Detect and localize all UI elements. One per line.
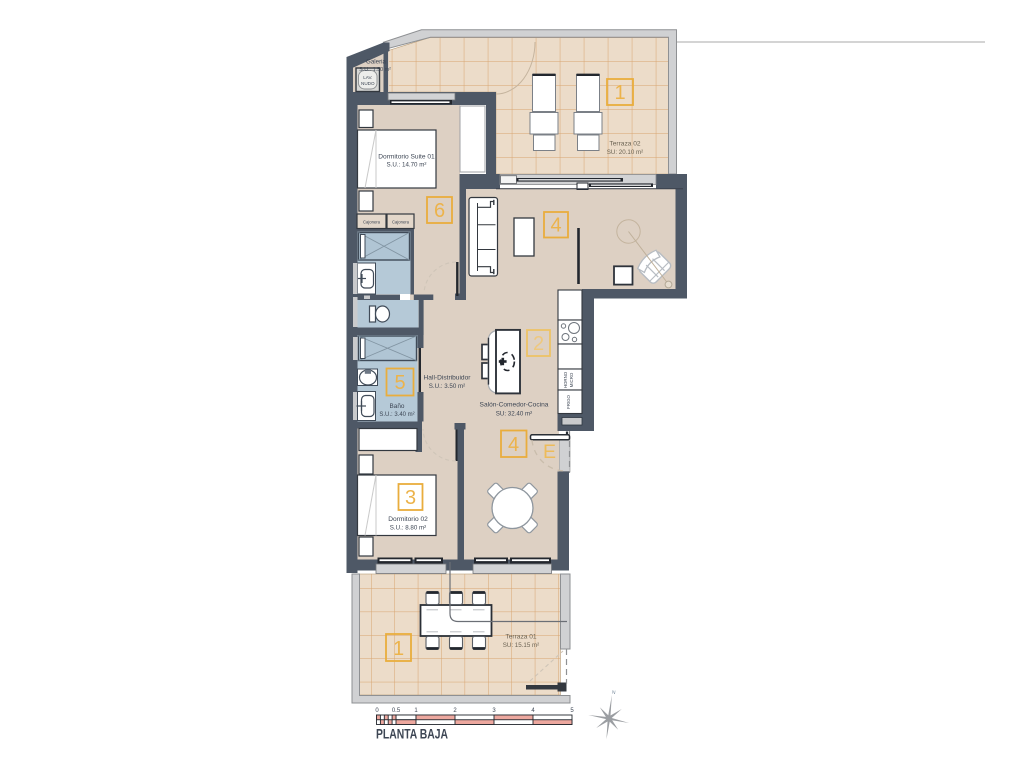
svg-text:Dormitorio 02: Dormitorio 02 (388, 516, 428, 523)
svg-text:S.U.: 3.50 m²: S.U.: 3.50 m² (429, 383, 465, 390)
svg-text:Cajonera: Cajonera (392, 220, 410, 225)
svg-text:E: E (543, 441, 556, 463)
svg-text:Terraza 01: Terraza 01 (505, 634, 536, 641)
svg-text:Hall-Distribuidor: Hall-Distribuidor (424, 375, 472, 382)
svg-text:Dormitorio Suite 01: Dormitorio Suite 01 (378, 154, 435, 161)
svg-text:S.U.: 14.70 m²: S.U.: 14.70 m² (387, 162, 427, 169)
svg-text:N: N (611, 690, 616, 696)
svg-text:SU: 32.40 m²: SU: 32.40 m² (496, 411, 532, 418)
svg-text:S.U.: 8.80 m²: S.U.: 8.80 m² (390, 525, 426, 532)
svg-text:NUDO: NUDO (361, 81, 375, 86)
svg-text:FRIGO: FRIGO (566, 394, 571, 408)
svg-text:1: 1 (393, 638, 404, 660)
svg-text:Terraza 02: Terraza 02 (609, 141, 640, 148)
svg-text:Baño: Baño (390, 403, 405, 410)
svg-text:LAV.: LAV. (363, 75, 372, 80)
svg-text:0: 0 (375, 708, 379, 714)
svg-text:SU: 20.10 m²: SU: 20.10 m² (607, 149, 643, 156)
svg-text:Salón-Comedor-Cocina: Salón-Comedor-Cocina (480, 402, 549, 409)
svg-text:SU: 15.15 m²: SU: 15.15 m² (503, 642, 539, 649)
svg-text:6: 6 (434, 200, 445, 222)
svg-text:Cajonera: Cajonera (363, 220, 381, 225)
svg-text:2: 2 (533, 333, 544, 355)
svg-text:4: 4 (550, 215, 561, 237)
svg-text:3: 3 (492, 708, 496, 714)
svg-text:S.U.: 1.50 m²: S.U.: 1.50 m² (359, 67, 391, 73)
svg-text:Galeria: Galeria (366, 59, 387, 66)
svg-text:5: 5 (394, 372, 405, 394)
svg-text:1: 1 (414, 708, 418, 714)
svg-text:0.5: 0.5 (392, 708, 401, 714)
svg-text:3: 3 (405, 487, 416, 509)
svg-text:2: 2 (453, 708, 457, 714)
svg-text:HORNO: HORNO (563, 371, 568, 388)
svg-text:4: 4 (531, 708, 535, 714)
svg-text:MICRO: MICRO (569, 372, 574, 387)
svg-text:1: 1 (614, 82, 625, 104)
svg-text:PLANTA BAJA: PLANTA BAJA (376, 726, 448, 742)
svg-text:5: 5 (570, 708, 574, 714)
svg-text:S.U.: 3.40 m²: S.U.: 3.40 m² (379, 412, 414, 418)
svg-text:4: 4 (508, 434, 519, 456)
